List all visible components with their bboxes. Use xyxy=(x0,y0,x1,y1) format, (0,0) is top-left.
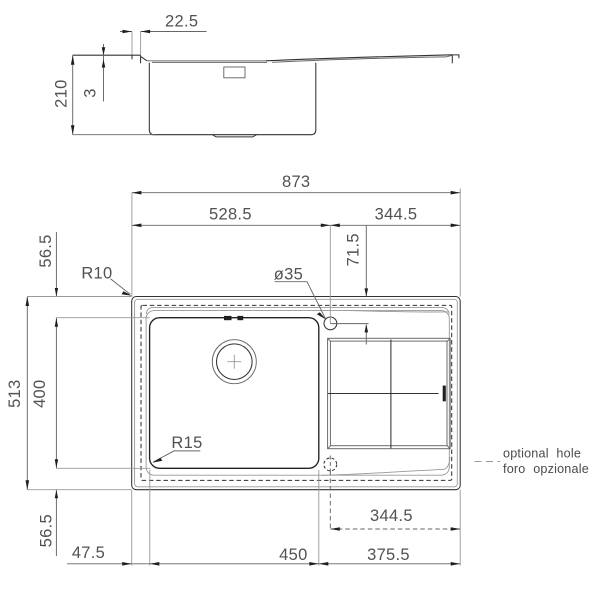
svg-text:450: 450 xyxy=(279,546,307,564)
svg-text:56.5: 56.5 xyxy=(37,234,55,267)
svg-text:ø35: ø35 xyxy=(274,266,303,284)
svg-text:foro opzionale: foro opzionale xyxy=(503,462,589,476)
svg-text:400: 400 xyxy=(31,379,49,407)
svg-text:R15: R15 xyxy=(171,434,202,452)
svg-text:210: 210 xyxy=(53,79,71,107)
svg-text:3: 3 xyxy=(82,88,100,97)
svg-text:375.5: 375.5 xyxy=(367,546,410,564)
svg-text:47.5: 47.5 xyxy=(72,544,105,562)
svg-text:528.5: 528.5 xyxy=(209,206,252,224)
svg-text:873: 873 xyxy=(282,173,310,191)
svg-text:344.5: 344.5 xyxy=(370,507,413,525)
svg-text:optional hole: optional hole xyxy=(503,447,581,461)
svg-text:22.5: 22.5 xyxy=(165,12,198,30)
svg-text:56.5: 56.5 xyxy=(38,514,56,547)
svg-text:344.5: 344.5 xyxy=(375,206,418,224)
svg-text:R10: R10 xyxy=(81,265,112,283)
svg-text:513: 513 xyxy=(6,379,24,407)
svg-text:71.5: 71.5 xyxy=(345,233,363,266)
